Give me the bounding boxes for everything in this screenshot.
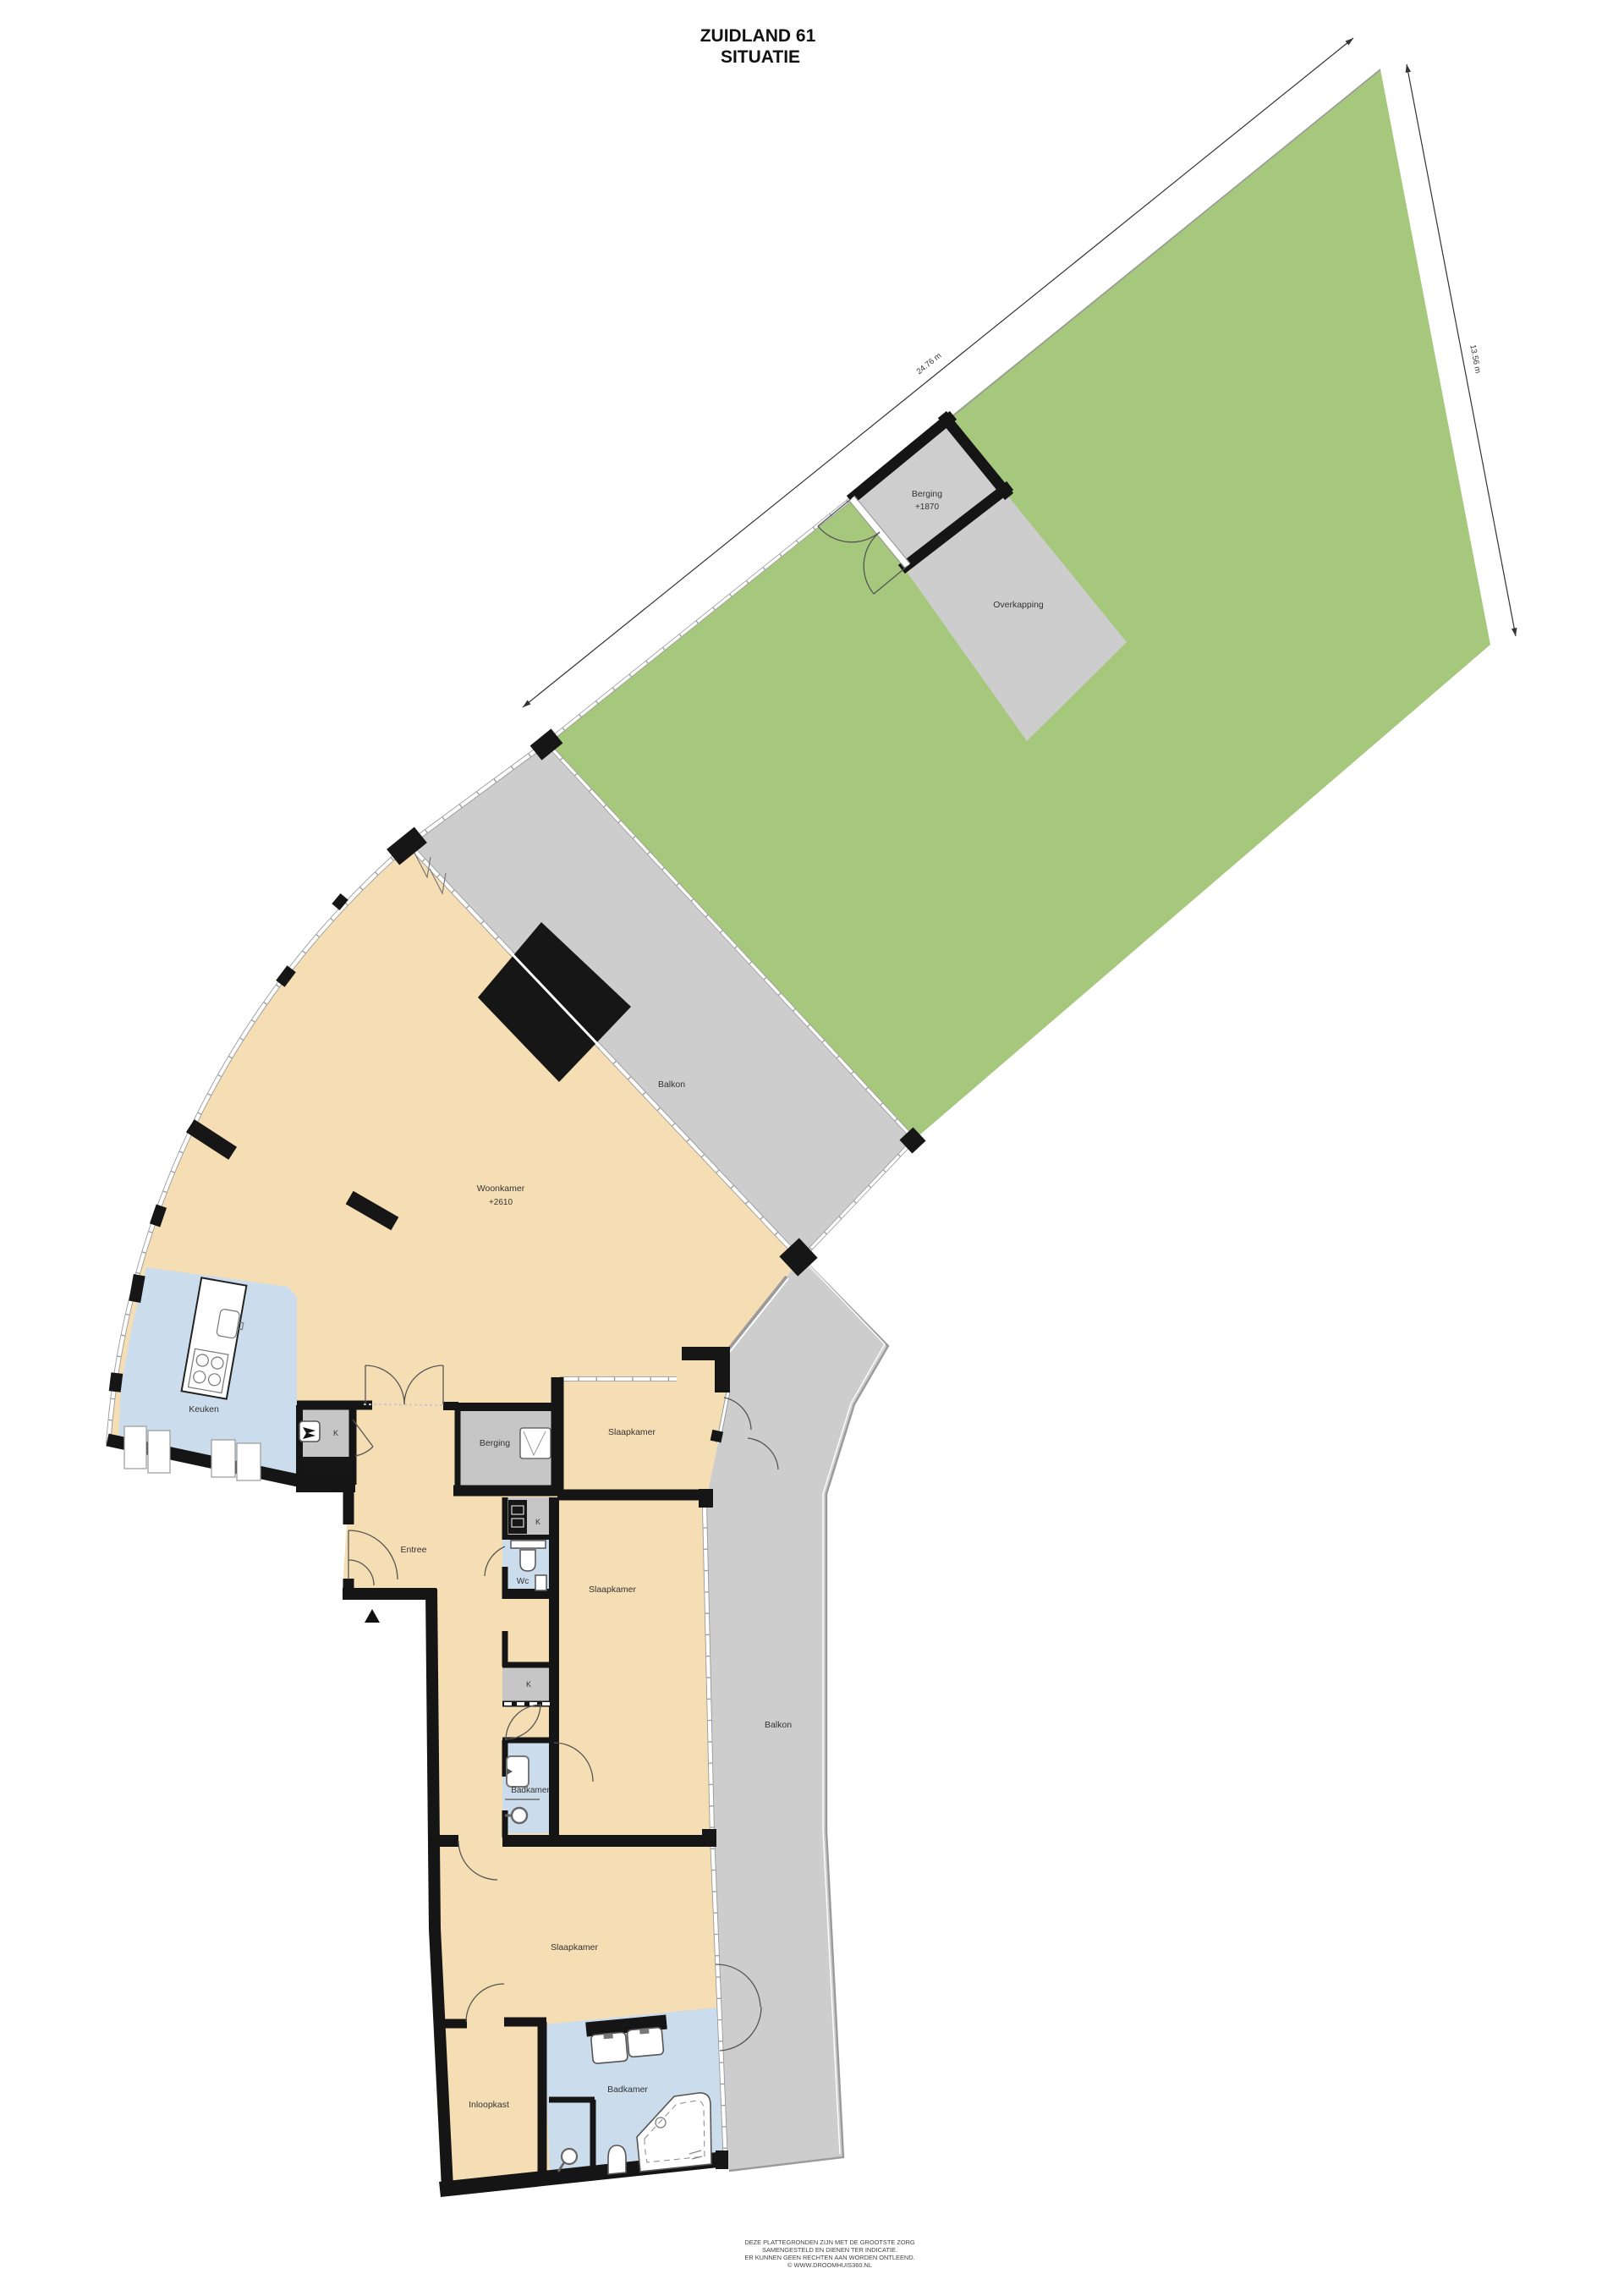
svg-text:Woonkamer: Woonkamer (477, 1184, 525, 1194)
svg-text:Wc: Wc (517, 1577, 529, 1586)
svg-text:+1870: +1870 (915, 503, 940, 512)
svg-text:Slaapkamer: Slaapkamer (551, 1942, 599, 1953)
svg-text:Badkamer: Badkamer (511, 1786, 550, 1795)
svg-text:DEZE PLATTEGRONDEN ZIJN MET DE: DEZE PLATTEGRONDEN ZIJN MET DE GROOTSTE … (744, 2238, 915, 2246)
svg-text:K: K (333, 1429, 338, 1437)
svg-text:ER KUNNEN GEEN RECHTEN AAN WOR: ER KUNNEN GEEN RECHTEN AAN WORDEN ONTLEE… (744, 2254, 914, 2261)
svg-text:Berging: Berging (480, 1438, 510, 1448)
svg-text:Slaapkamer: Slaapkamer (589, 1585, 637, 1595)
svg-text:Balkon: Balkon (765, 1720, 792, 1730)
svg-text:SITUATIE: SITUATIE (721, 47, 800, 67)
svg-text:Keuken: Keuken (189, 1404, 219, 1414)
svg-text:Inloopkast: Inloopkast (469, 2100, 509, 2110)
svg-text:Berging: Berging (912, 489, 942, 499)
svg-text:© WWW.DROOMHUIS360.NL: © WWW.DROOMHUIS360.NL (787, 2261, 872, 2269)
svg-text:SAMENGESTELD EN DIENEN TER IND: SAMENGESTELD EN DIENEN TER INDICATIE. (762, 2246, 897, 2254)
svg-text:Entree: Entree (401, 1545, 427, 1555)
svg-text:Balkon: Balkon (658, 1079, 685, 1090)
svg-text:+2610: +2610 (489, 1198, 513, 1207)
svg-text:Overkapping: Overkapping (993, 600, 1044, 610)
svg-text:Badkamer: Badkamer (607, 2085, 648, 2095)
svg-text:K: K (535, 1518, 540, 1526)
svg-text:K: K (526, 1680, 531, 1689)
svg-text:ZUIDLAND 61: ZUIDLAND 61 (700, 26, 816, 46)
svg-text:Slaapkamer: Slaapkamer (608, 1427, 656, 1437)
